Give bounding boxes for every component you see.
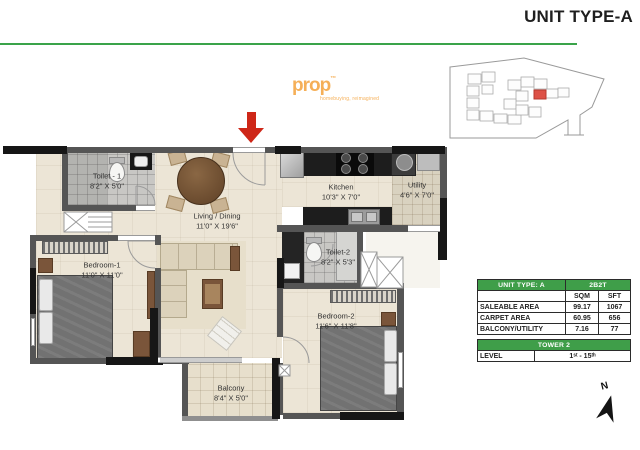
room-name: Bedroom-2	[315, 311, 356, 321]
room-dims: 11'6" X 11'8"	[315, 321, 356, 331]
row-sqm: 60.95	[566, 313, 599, 324]
header-divider	[0, 43, 577, 45]
floor-plan: Toilet - 1 8'2" X 5'0" Living / Dining 1…	[0, 100, 470, 450]
tower-table: TOWER 2 LEVEL 1ˢᵗ - 15ᵗʰ	[477, 339, 631, 362]
table-row: LEVEL 1ˢᵗ - 15ᵗʰ	[478, 351, 631, 362]
col-header-sft: SFT	[599, 291, 631, 302]
room-label-living: Living / Dining 11'0" X 19'6"	[193, 211, 240, 231]
room-dims: 8'4" X 5'0"	[214, 393, 248, 403]
tower-table-title: TOWER 2	[478, 340, 631, 351]
room-name: Living / Dining	[193, 211, 240, 221]
trademark-icon: ™	[330, 76, 335, 82]
row-sft: 77	[599, 324, 631, 335]
room-name: Balcony	[214, 383, 248, 393]
row-label: SALEABLE AREA	[478, 302, 566, 313]
room-label-balcony: Balcony 8'4" X 5'0"	[214, 383, 248, 403]
room-name: Toilet - 1	[90, 171, 124, 181]
level-value: 1ˢᵗ - 15ᵗʰ	[535, 351, 631, 362]
north-label: N	[600, 380, 610, 392]
room-dims: 8'2" X 5'3"	[321, 257, 355, 267]
room-dims: 11'0" X 19'6"	[193, 221, 240, 231]
col-header-sqm: SQM	[566, 291, 599, 302]
room-label-kitchen: Kitchen 10'3" X 7'0"	[322, 182, 360, 202]
row-sqm: 7.16	[566, 324, 599, 335]
table-row: BALCONY/UTILITY 7.16 77	[478, 324, 631, 335]
room-dims: 10'3" X 7'0"	[322, 192, 360, 202]
room-name: Utility	[400, 180, 434, 190]
brand-watermark: prop™ homebuying, reimagined	[292, 76, 402, 102]
level-label: LEVEL	[478, 351, 535, 362]
area-table-unit-type: UNIT TYPE: A	[478, 280, 566, 291]
watermark-brand: prop	[292, 75, 330, 96]
highlighted-unit	[534, 90, 546, 99]
room-label-utility: Utility 4'6" X 7'0"	[400, 180, 434, 200]
site-key-plan	[446, 54, 606, 142]
row-sqm: 99.17	[566, 302, 599, 313]
room-label-toilet2: Toilet-2 8'2" X 5'3"	[321, 247, 355, 267]
table-row: CARPET AREA 60.95 656	[478, 313, 631, 324]
room-label-toilet1: Toilet - 1 8'2" X 5'0"	[90, 171, 124, 191]
table-row: SALEABLE AREA 99.17 1067	[478, 302, 631, 313]
room-label-bedroom1: Bedroom-1 11'0" X 11'0"	[81, 260, 122, 280]
row-sft: 656	[599, 313, 631, 324]
row-label: CARPET AREA	[478, 313, 566, 324]
room-name: Kitchen	[322, 182, 360, 192]
area-table-blank	[478, 291, 566, 302]
room-dims: 11'0" X 11'0"	[81, 270, 122, 280]
room-name: Toilet-2	[321, 247, 355, 257]
room-dims: 4'6" X 7'0"	[400, 190, 434, 200]
north-arrow-icon	[594, 392, 622, 424]
area-table: UNIT TYPE: A 2B2T SQM SFT SALEABLE AREA …	[477, 279, 631, 335]
area-table-config: 2B2T	[566, 280, 631, 291]
row-sft: 1067	[599, 302, 631, 313]
room-label-bedroom2: Bedroom-2 11'6" X 11'8"	[315, 311, 356, 331]
floor-plan-page: { "title": "UNIT TYPE-A", "watermark": {…	[0, 0, 640, 449]
row-label: BALCONY/UTILITY	[478, 324, 566, 335]
room-dims: 8'2" X 5'0"	[90, 181, 124, 191]
room-name: Bedroom-1	[81, 260, 122, 270]
page-title: UNIT TYPE-A	[524, 7, 633, 27]
